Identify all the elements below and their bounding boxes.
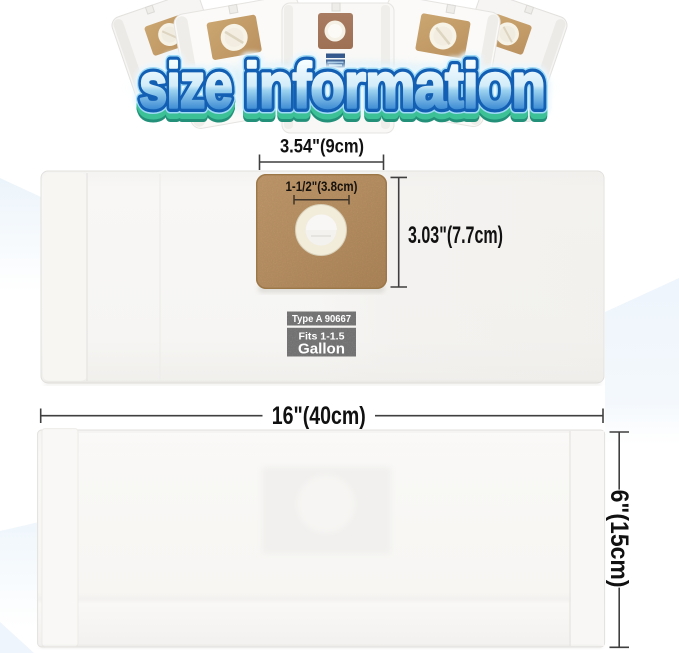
svg-text:information: information <box>244 50 545 122</box>
svg-text:size: size <box>139 50 232 122</box>
svg-text:6"(15cm): 6"(15cm) <box>605 490 633 588</box>
svg-text:16"(40cm): 16"(40cm) <box>272 402 366 430</box>
svg-text:Gallon: Gallon <box>298 342 345 358</box>
svg-text:3.03"(7.7cm): 3.03"(7.7cm) <box>408 222 503 249</box>
svg-text:Type A 90667: Type A 90667 <box>292 313 351 325</box>
svg-text:3.54"(9cm): 3.54"(9cm) <box>280 137 364 158</box>
svg-text:1-1/2"(3.8cm): 1-1/2"(3.8cm) <box>286 179 358 194</box>
